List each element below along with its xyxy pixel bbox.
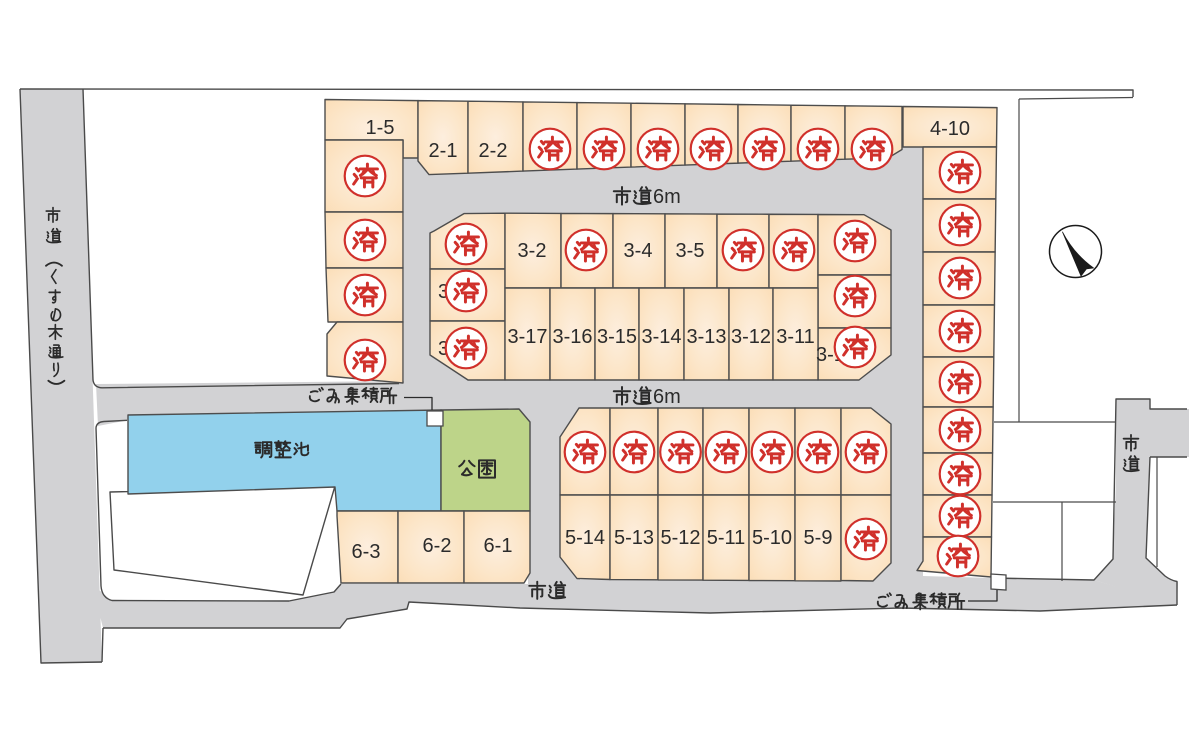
svg-text:5-12: 5-12 — [660, 527, 700, 549]
svg-text:6m: 6m — [653, 186, 681, 208]
svg-text:3-2: 3-2 — [518, 240, 547, 262]
svg-text:3-17: 3-17 — [507, 326, 547, 348]
svg-text:6-3: 6-3 — [352, 541, 381, 563]
svg-text:3-16: 3-16 — [552, 326, 592, 348]
svg-text:3-13: 3-13 — [686, 326, 726, 348]
svg-text:6-1: 6-1 — [484, 535, 513, 557]
svg-text:4-10: 4-10 — [930, 118, 970, 140]
svg-text:1-5: 1-5 — [366, 117, 395, 139]
svg-text:2-1: 2-1 — [429, 140, 458, 162]
svg-text:3-5: 3-5 — [676, 240, 705, 262]
svg-text:5-10: 5-10 — [752, 527, 792, 549]
svg-text:6-2: 6-2 — [423, 535, 452, 557]
svg-text:3-11: 3-11 — [776, 326, 815, 348]
svg-text:3-14: 3-14 — [641, 326, 681, 348]
svg-text:3-12: 3-12 — [731, 326, 771, 348]
svg-text:6m: 6m — [653, 386, 681, 408]
svg-text:3-15: 3-15 — [597, 326, 637, 348]
svg-text:3-4: 3-4 — [624, 240, 653, 262]
svg-text:2-2: 2-2 — [479, 140, 508, 162]
svg-text:5-13: 5-13 — [614, 527, 654, 549]
svg-text:5-11: 5-11 — [707, 527, 746, 549]
svg-text:5-9: 5-9 — [804, 527, 833, 549]
svg-text:5-14: 5-14 — [565, 527, 605, 549]
